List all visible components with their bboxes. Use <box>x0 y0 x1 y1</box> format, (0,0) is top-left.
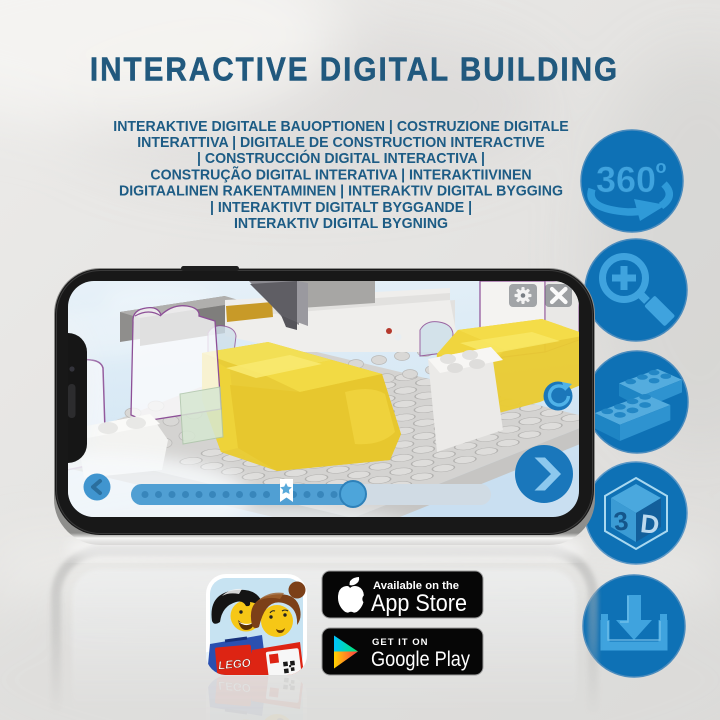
svg-text:GET IT ON: GET IT ON <box>372 637 429 648</box>
svg-text:360: 360 <box>596 159 656 200</box>
svg-text:D: D <box>639 508 661 540</box>
svg-text:INTERATTIVA | DIGITALE DE CONS: INTERATTIVA | DIGITALE DE CONSTRUCTION I… <box>137 135 545 151</box>
svg-text:| CONSTRUCCIÓN DIGITAL INTERAC: | CONSTRUCCIÓN DIGITAL INTERACTIVA | <box>197 149 485 167</box>
svg-text:| INTERAKTIVT DIGITALT BYGGAND: | INTERAKTIVT DIGITALT BYGGANDE | <box>210 200 472 216</box>
svg-text:INTERACTIVE DIGITAL BUILDING: INTERACTIVE DIGITAL BUILDING <box>90 51 619 88</box>
svg-text:CONSTRUÇÃO DIGITAL INTERATIVA: CONSTRUÇÃO DIGITAL INTERATIVA | INTERAKT… <box>150 165 531 183</box>
svg-text:o: o <box>656 157 667 177</box>
svg-text:Google Play: Google Play <box>371 648 470 671</box>
svg-text:INTERAKTIVE DIGITALE BAUOPTION: INTERAKTIVE DIGITALE BAUOPTIONEN | COSTR… <box>113 119 568 135</box>
svg-text:App Store: App Store <box>371 590 467 617</box>
svg-text:INTERAKTIV DIGITAL BYGNING: INTERAKTIV DIGITAL BYGNING <box>234 216 448 232</box>
svg-text:DIGITAALINEN RAKENTAMINEN | IN: DIGITAALINEN RAKENTAMINEN | INTERAKTIV D… <box>119 184 563 200</box>
